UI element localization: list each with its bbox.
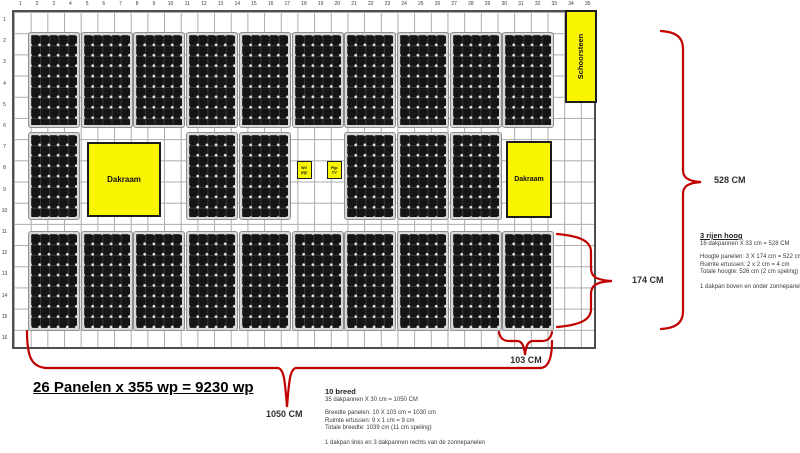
column-label: 26 [432,2,442,7]
row-label: 10 [0,209,9,214]
column-label: 29 [483,2,493,7]
column-label: 19 [316,2,326,7]
column-label: 31 [516,2,526,7]
column-label: 16 [266,2,276,7]
column-label: 13 [216,2,226,7]
solar-panel [82,232,132,330]
column-label: 12 [199,2,209,7]
column-label: 14 [232,2,242,7]
row-label: 6 [0,124,9,129]
note-line: Ruimte ertussen: 9 x 1 cm = 9 cm [325,418,505,426]
page-title: 26 Panelen x 355 wp = 9230 wp [33,379,254,396]
roof-plan-diagram: 1234567891011121314151617181920212223242… [0,0,800,453]
row-label: 9 [0,188,9,193]
solar-panel [293,33,343,127]
solar-panel [134,33,184,127]
notes-width-block: 10 breed 35 dakpannen X 30 cm = 1050 CM … [325,388,505,447]
row-label: 14 [0,294,9,299]
solar-panel [187,33,237,127]
column-label: 18 [299,2,309,7]
solar-panel [451,33,501,127]
pipe-cv-label: Pijp CV [331,166,338,174]
column-label: 23 [382,2,392,7]
column-label: 10 [166,2,176,7]
row-label: 13 [0,272,9,277]
chimney-label: Schoorsteen [577,34,586,79]
column-label: 27 [449,2,459,7]
row-label: 8 [0,166,9,171]
note-line: Breedte panelen: 10 X 103 cm = 1030 cm [325,410,505,418]
solar-panel [345,133,395,219]
column-label: 7 [115,2,125,7]
column-label: 30 [499,2,509,7]
solar-panel [293,232,343,330]
pipe-wv-label: WV pijp [301,166,307,174]
solar-panel [134,232,184,330]
solar-panel [345,232,395,330]
dimension-label-panel-height: 174 CM [632,275,664,285]
notes-height-lines: Hoogte panelen: 3 X 174 cm = 522 cmRuimt… [700,254,800,277]
solar-panel [240,232,290,330]
dimension-label-panel-width: 103 CM [503,355,549,365]
solar-panel [29,33,79,127]
column-label: 5 [82,2,92,7]
column-label: 20 [332,2,342,7]
row-label: 16 [0,336,9,341]
dimension-label-total-width: 1050 CM [266,409,303,419]
column-label: 34 [566,2,576,7]
notes-width-lines: Breedte panelen: 10 X 103 cm = 1030 cmRu… [325,410,505,433]
brace-total-height [661,31,701,329]
note-line: Totale hoogte: 526 cm (2 cm speling) [700,269,800,277]
solar-panel [398,232,448,330]
notes-width-footer: 1 dakpan links en 3 dakpannen rechts van… [325,440,505,448]
solar-panel [82,33,132,127]
notes-height-subheading: 16 dakpannen X 33 cm = 528 CM [700,241,800,249]
dakraam-right-label: Dakraam [514,176,544,183]
notes-width-heading: 10 breed [325,388,505,396]
column-label: 9 [149,2,159,7]
column-label: 3 [49,2,59,7]
solar-panel [345,33,395,127]
column-label: 24 [399,2,409,7]
notes-height-footer: 1 dakpan boven en onder zonnepanelen [700,284,800,292]
solar-panel [187,232,237,330]
solar-panel [451,232,501,330]
column-label: 17 [282,2,292,7]
chimney-box: Schoorsteen [565,10,597,103]
solar-panel [187,133,237,219]
pipe-cv-box: Pijp CV [327,161,342,179]
column-label: 25 [416,2,426,7]
dakraam-left-label: Dakraam [107,175,141,184]
solar-panel [29,232,79,330]
row-label: 5 [0,103,9,108]
dakraam-left: Dakraam [87,142,161,217]
note-line: Totale breedte: 1039 cm (11 cm speling) [325,425,505,433]
row-label: 1 [0,18,9,23]
column-label: 21 [349,2,359,7]
column-label: 11 [182,2,192,7]
row-label: 15 [0,315,9,320]
solar-panel [240,133,290,219]
row-label: 7 [0,145,9,150]
column-label: 32 [533,2,543,7]
column-label: 8 [132,2,142,7]
solar-panel [503,33,553,127]
solar-panel [451,133,501,219]
column-label: 22 [366,2,376,7]
solar-panel [398,133,448,219]
column-label: 35 [583,2,593,7]
solar-panel [29,133,79,219]
solar-panel [503,232,553,330]
column-label: 4 [65,2,75,7]
column-label: 33 [549,2,559,7]
solar-panel [240,33,290,127]
row-label: 12 [0,251,9,256]
column-label: 2 [32,2,42,7]
column-label: 6 [99,2,109,7]
dimension-label-total-height: 528 CM [714,175,746,185]
row-label: 2 [0,39,9,44]
notes-height-block: 3 rijen hoog 16 dakpannen X 33 cm = 528 … [700,232,800,291]
row-label: 11 [0,230,9,235]
note-line: Hoogte panelen: 3 X 174 cm = 522 cm [700,254,800,262]
column-label: 28 [466,2,476,7]
row-label: 3 [0,60,9,65]
column-label: 15 [249,2,259,7]
column-label: 1 [15,2,25,7]
row-label: 4 [0,82,9,87]
notes-height-heading: 3 rijen hoog [700,232,800,240]
solar-panel [398,33,448,127]
notes-width-subheading: 35 dakpannen X 30 cm = 1050 CM [325,397,505,405]
pipe-wv-box: WV pijp [297,161,312,179]
dakraam-right: Dakraam [506,141,552,218]
note-line: Ruimte ertussen: 2 x 2 cm = 4 cm [700,262,800,270]
